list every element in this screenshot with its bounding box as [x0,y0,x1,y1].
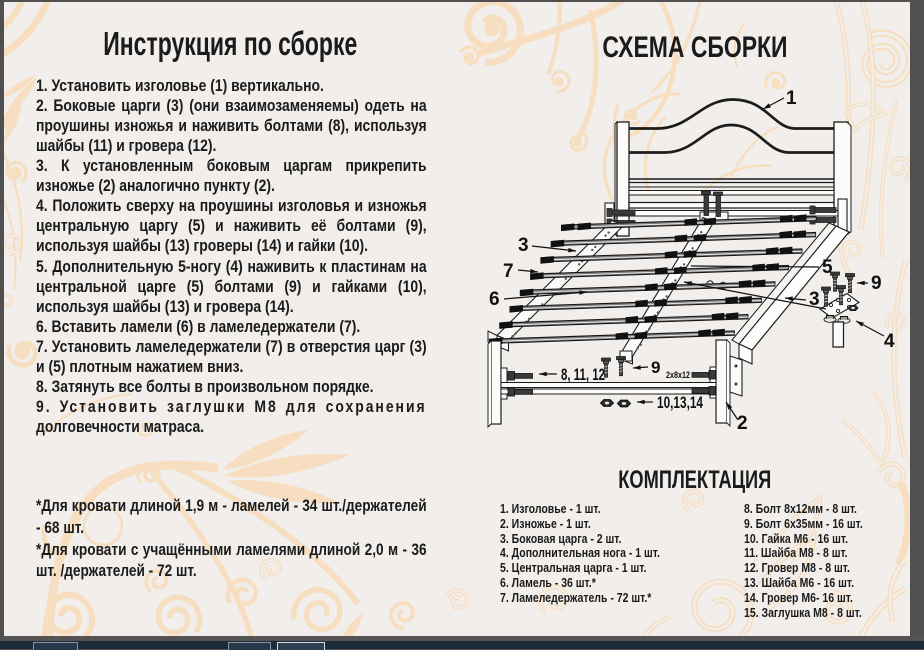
svg-text:2: 2 [737,413,748,434]
svg-text:3: 3 [518,235,529,256]
svg-text:5: 5 [822,257,833,278]
svg-text:8, 11, 12: 8, 11, 12 [561,365,605,384]
svg-text:2х8х12: 2х8х12 [666,370,690,380]
svg-text:7: 7 [503,261,514,282]
svg-text:9: 9 [651,358,660,377]
svg-text:4: 4 [884,331,895,352]
svg-text:6: 6 [489,289,500,310]
svg-text:9: 9 [871,273,882,294]
svg-text:1: 1 [786,88,797,109]
svg-text:10,13,14: 10,13,14 [657,393,703,412]
